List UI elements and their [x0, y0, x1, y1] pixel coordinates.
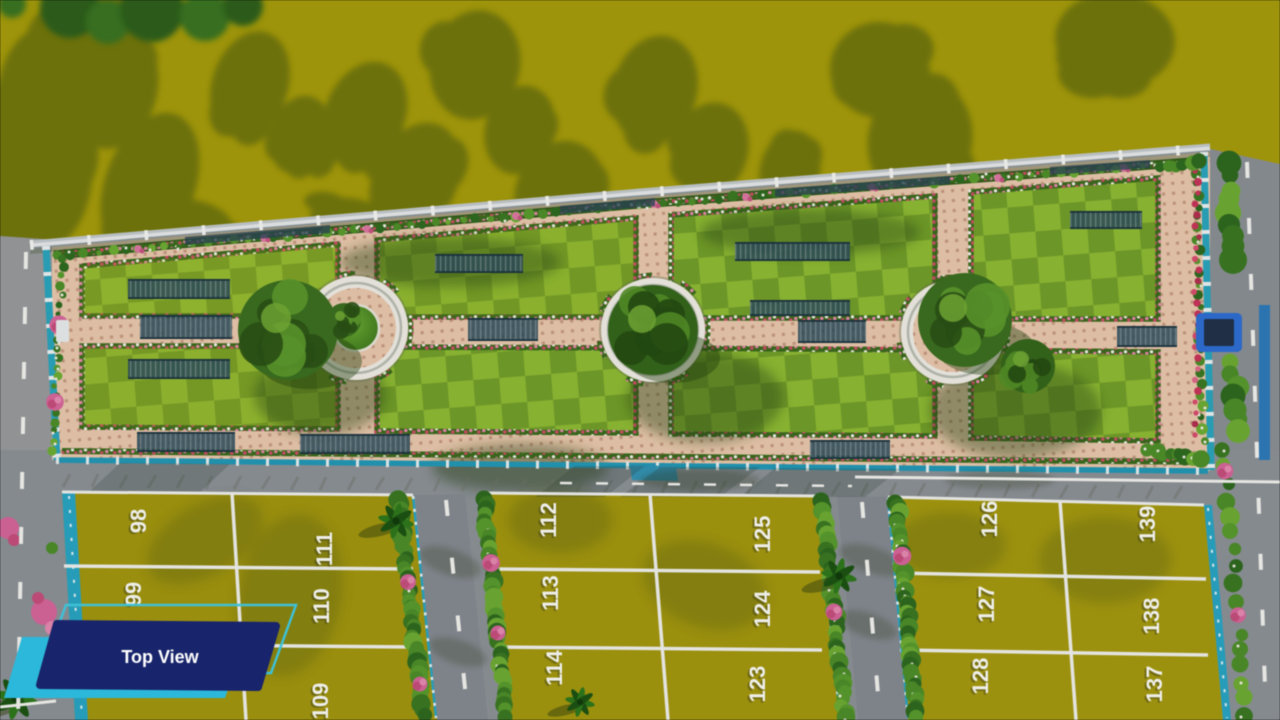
- svg-text:Top View: Top View: [121, 647, 199, 667]
